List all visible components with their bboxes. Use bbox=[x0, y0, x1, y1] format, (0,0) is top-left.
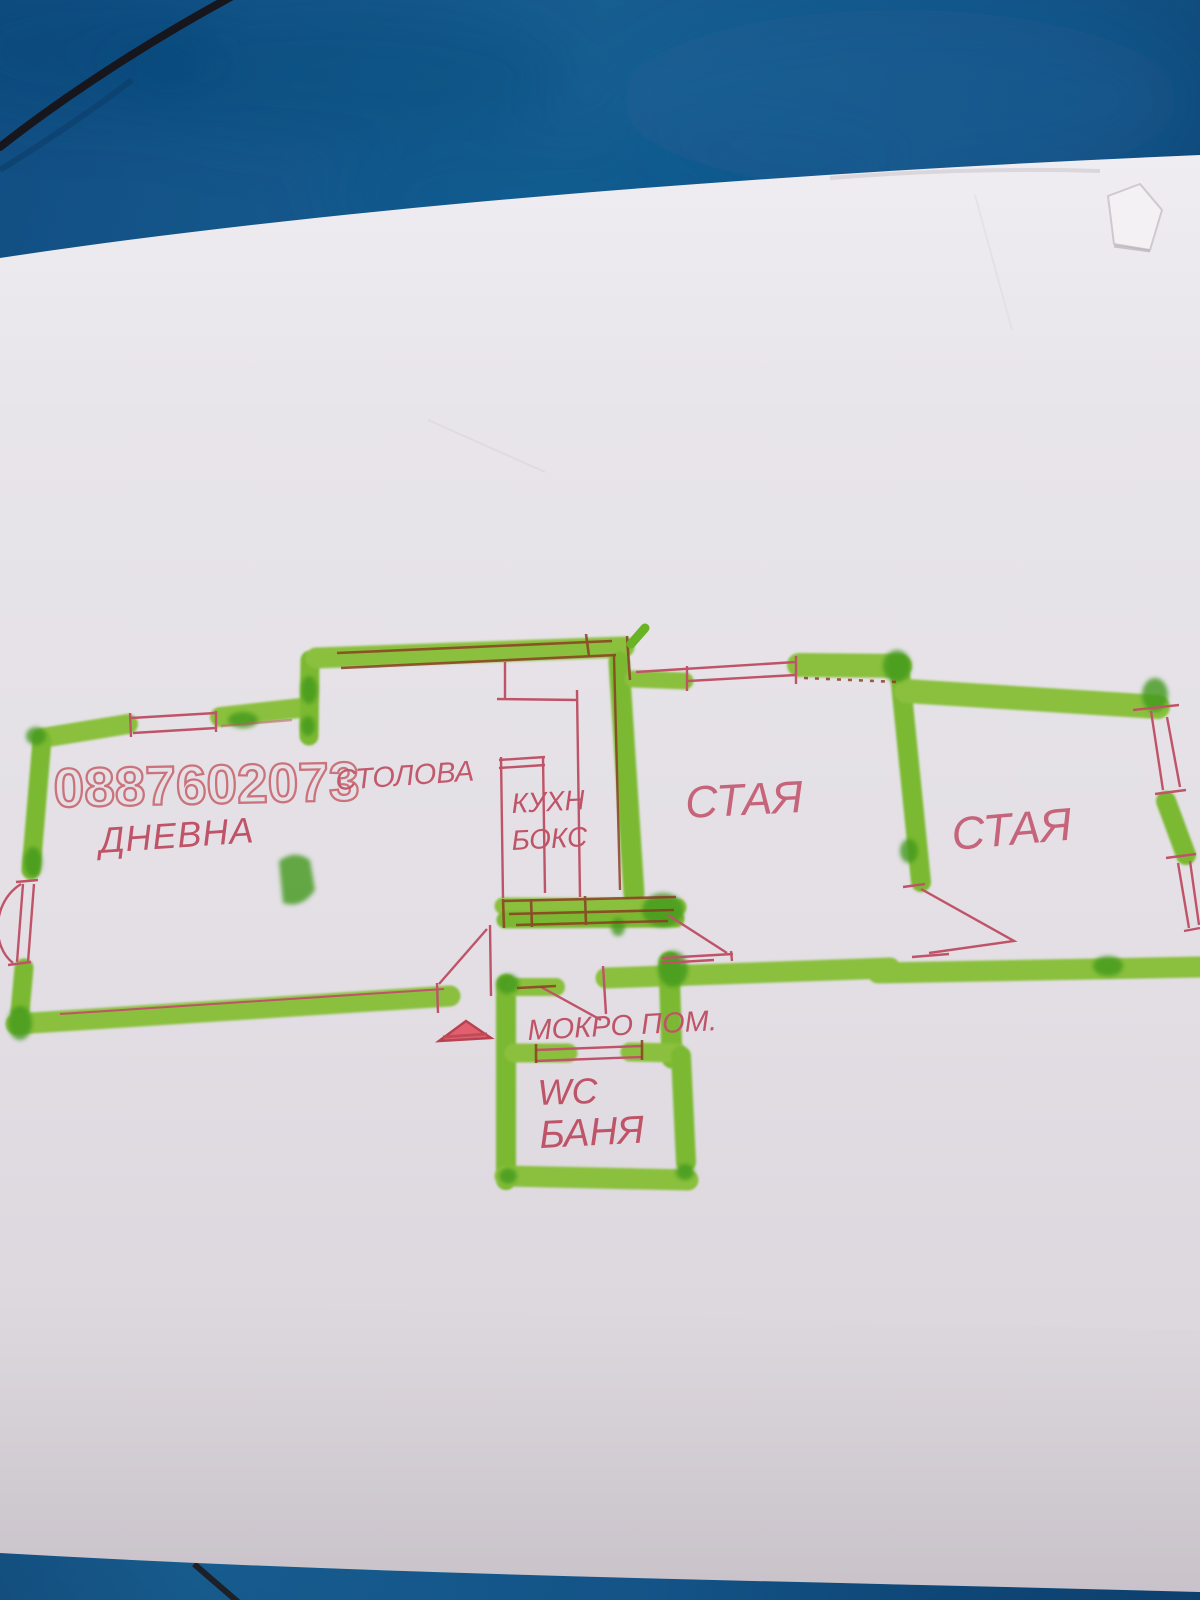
svg-text:СТАЯ: СТАЯ bbox=[684, 771, 805, 828]
svg-text:0887602073: 0887602073 bbox=[53, 750, 360, 819]
svg-text:WC: WC bbox=[537, 1070, 599, 1113]
svg-text:КУХН: КУХН bbox=[511, 784, 587, 819]
svg-text:БОКС: БОКС bbox=[511, 821, 589, 856]
svg-text:СТАЯ: СТАЯ bbox=[949, 798, 1074, 860]
svg-text:БАНЯ: БАНЯ bbox=[538, 1109, 645, 1157]
